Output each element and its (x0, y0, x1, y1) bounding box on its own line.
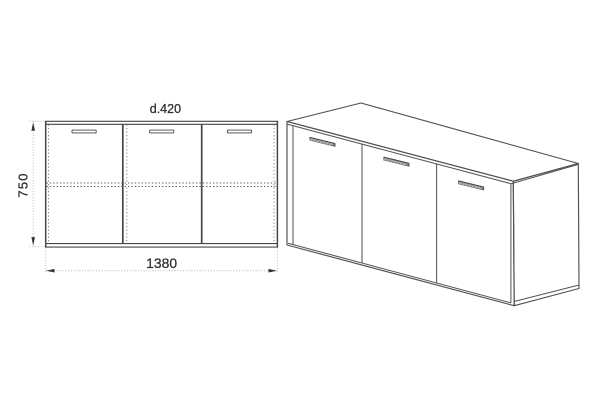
svg-text:d.420: d.420 (150, 102, 181, 116)
svg-text:1380: 1380 (146, 255, 177, 271)
svg-text:750: 750 (16, 172, 31, 197)
